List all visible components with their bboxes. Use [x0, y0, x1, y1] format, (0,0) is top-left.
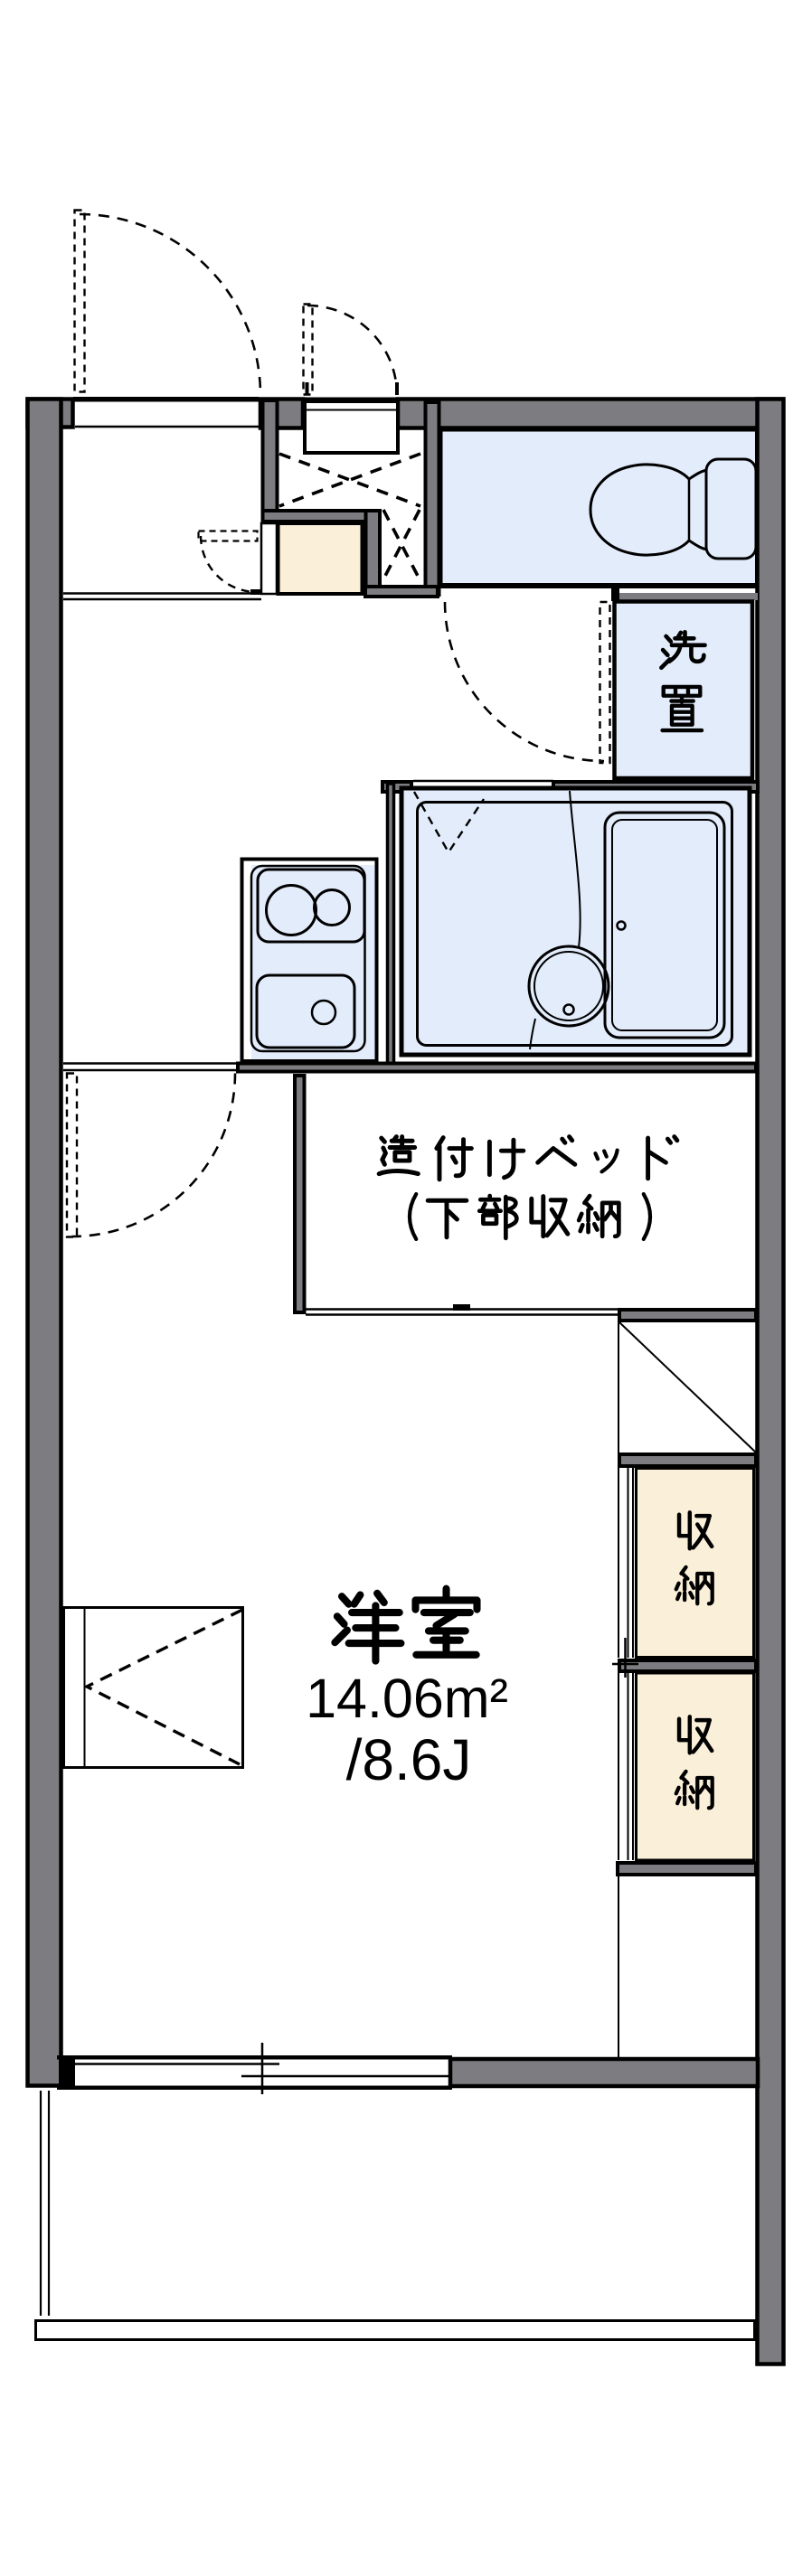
svg-text:14.06m²: 14.06m² — [306, 1668, 508, 1729]
svg-text:/8.6J: /8.6J — [346, 1727, 472, 1792]
